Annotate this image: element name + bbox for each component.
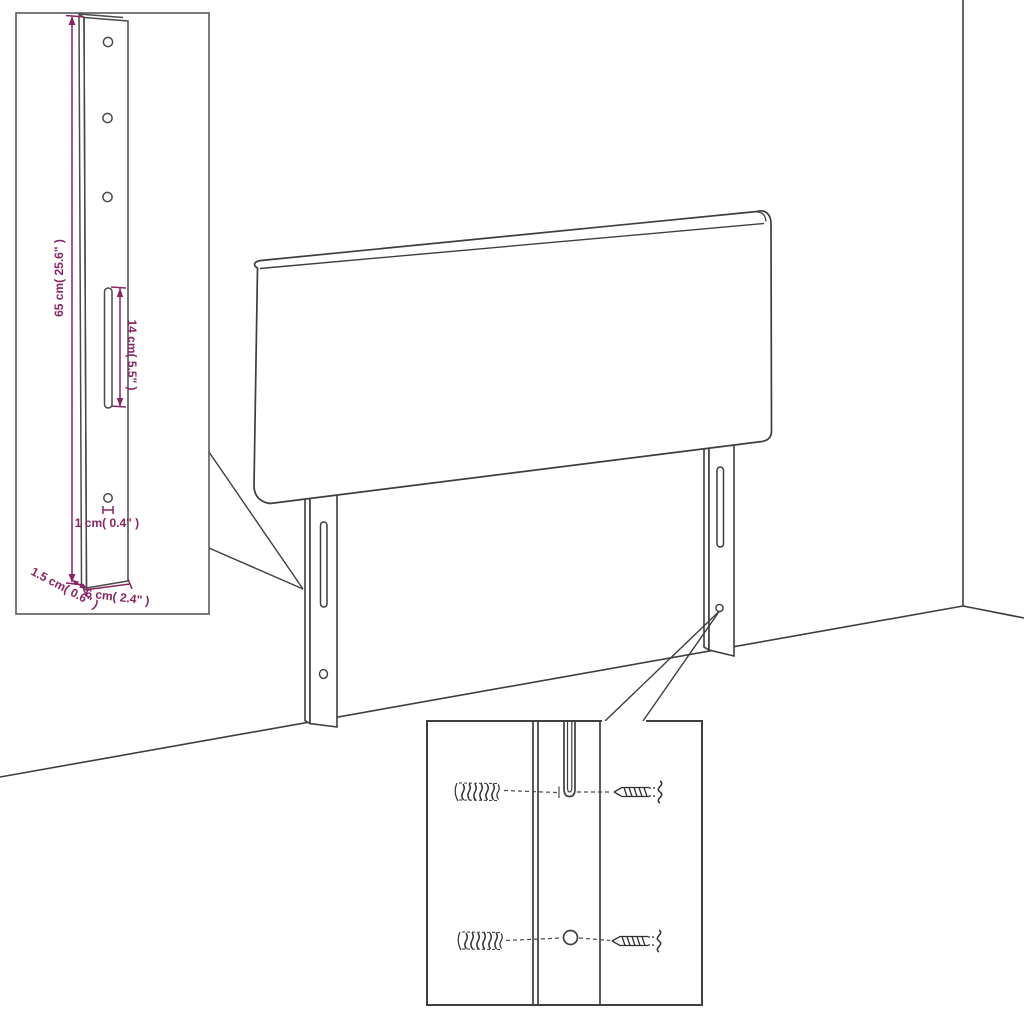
headboard-panel [254, 211, 772, 504]
headboard-dimension-diagram: 65 cm( 25.6" ) 14 cm( 5.5" ) 1 cm( 0.4" … [0, 0, 1024, 1024]
dimension-height-label: 65 cm( 25.6" ) [52, 239, 66, 317]
mounting-detail-inset [427, 721, 702, 1005]
dimension-slot-label: 14 cm( 5.5" ) [125, 319, 139, 390]
assembly-diagram-page: 65 cm( 25.6" ) 14 cm( 5.5" ) 1 cm( 0.4" … [0, 0, 1024, 1024]
left-leg [305, 482, 337, 727]
right-leg-front-face [709, 432, 734, 656]
dimension-hole-label: 1 cm( 0.4" ) [75, 516, 139, 530]
floor-line-right [963, 606, 1024, 618]
leg-detail-inset: 65 cm( 25.6" ) 14 cm( 5.5" ) 1 cm( 0.4" … [16, 13, 209, 614]
left-leg-front-face [310, 482, 337, 727]
panel-outline [254, 211, 772, 504]
